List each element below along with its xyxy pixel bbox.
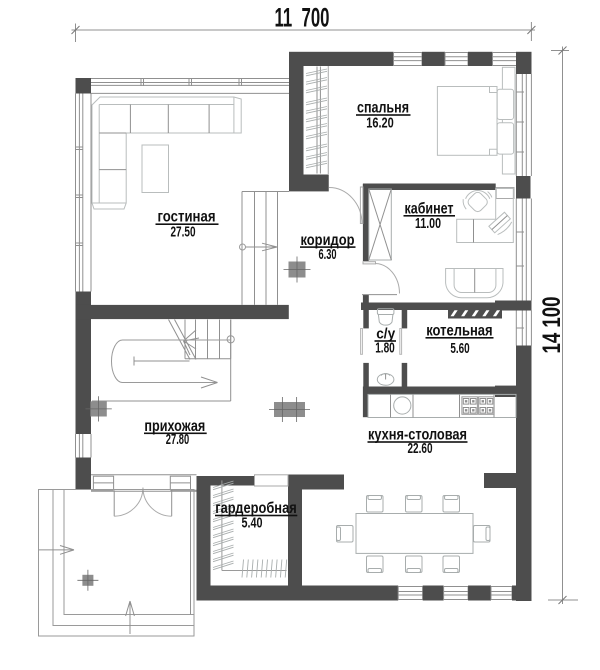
svg-text:22.60: 22.60 xyxy=(408,441,433,457)
svg-text:5.40: 5.40 xyxy=(242,515,263,531)
svg-text:спальня: спальня xyxy=(357,100,409,117)
svg-text:27.80: 27.80 xyxy=(166,432,189,448)
svg-text:14 100: 14 100 xyxy=(538,297,566,354)
svg-text:6.30: 6.30 xyxy=(319,247,337,263)
svg-text:кабинет: кабинет xyxy=(405,200,454,217)
svg-text:1.80: 1.80 xyxy=(375,341,395,357)
svg-text:27.50: 27.50 xyxy=(171,225,196,241)
svg-text:гостиная: гостиная xyxy=(158,209,216,226)
svg-text:котельная: котельная xyxy=(426,322,492,339)
svg-text:16.20: 16.20 xyxy=(366,116,394,132)
svg-text:5.60: 5.60 xyxy=(450,341,469,357)
svg-text:11 700: 11 700 xyxy=(275,3,330,33)
svg-text:11.00: 11.00 xyxy=(415,216,441,232)
